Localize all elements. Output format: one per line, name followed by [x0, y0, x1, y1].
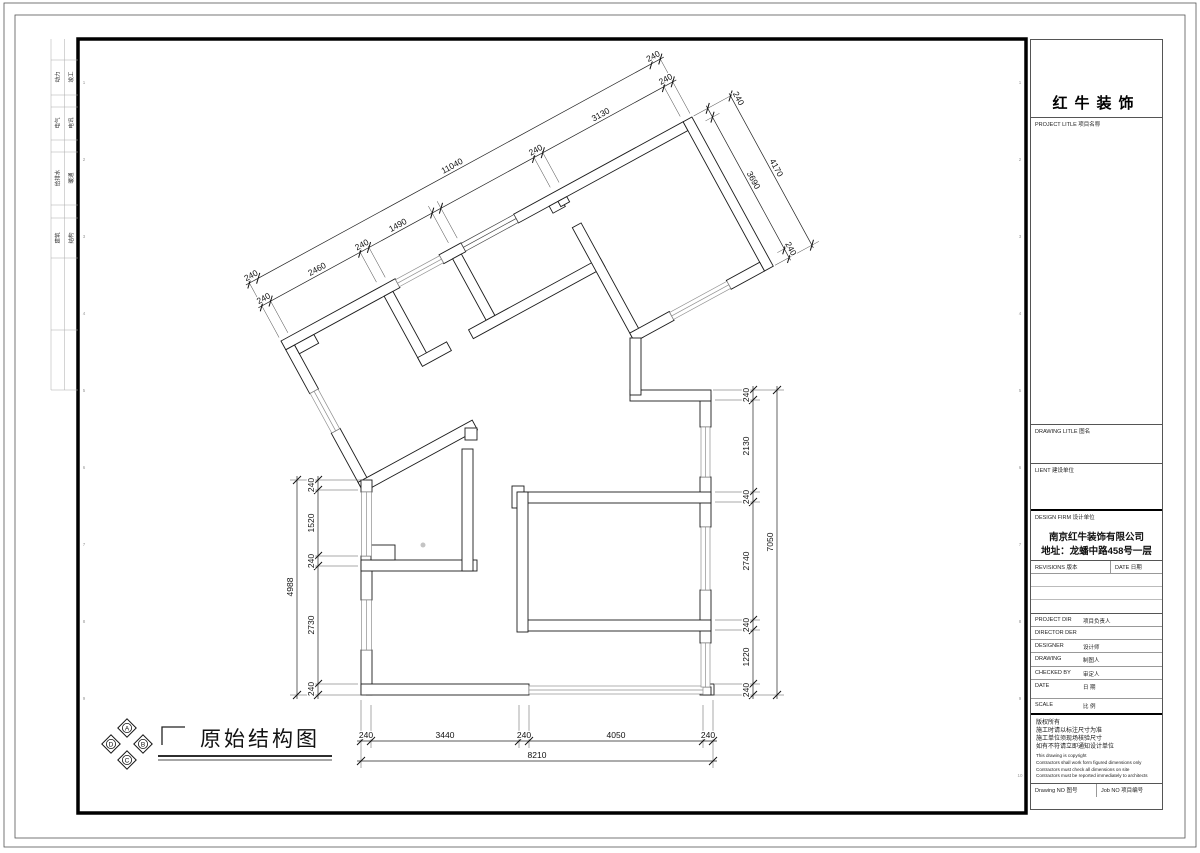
client-label: LIENT 建设单位	[1031, 464, 1162, 474]
bottom-dimensions: 240 3440 240 4050 240 8210	[357, 700, 717, 768]
staff-role-zh: 审定人	[1083, 667, 1100, 679]
revision-date-label: DATE 日期	[1111, 561, 1162, 573]
strip-label: 动力	[54, 71, 62, 82]
staff-role-zh: 项目负责人	[1083, 614, 1111, 626]
revision-row	[1031, 587, 1162, 600]
svg-text:C: C	[125, 758, 130, 765]
notice-line: 版权所有	[1036, 719, 1162, 727]
strip-label: 电气	[54, 117, 62, 129]
svg-text:240: 240	[741, 490, 751, 504]
door-symbol	[421, 543, 426, 548]
design-firm-label: DESIGN FIRM 设计单位	[1031, 511, 1162, 521]
svg-text:5: 5	[83, 388, 86, 393]
svg-text:1: 1	[1019, 80, 1022, 85]
staff-row: SCALE 比 例	[1031, 699, 1162, 713]
svg-text:6: 6	[1019, 465, 1022, 470]
compass-symbol: A B C D	[102, 719, 152, 769]
svg-text:240: 240	[741, 388, 751, 402]
svg-text:9: 9	[1019, 696, 1022, 701]
notice-line: 施工时请以标注尺寸为准	[1036, 727, 1162, 735]
revisions-table: REVISIONS 版本 DATE 日期	[1031, 561, 1162, 614]
strip-label: 暖通	[67, 172, 75, 184]
right-dimensions: 240 2130 240 2740 240 1220 240 7050	[713, 386, 784, 699]
staff-role-zh: 比 例	[1083, 699, 1096, 713]
revisions-label: REVISIONS 版本	[1031, 561, 1111, 573]
svg-text:3440: 3440	[436, 730, 455, 740]
number-box: Drawing NO 图号 Job NO 项目编号	[1031, 784, 1162, 811]
svg-text:240: 240	[701, 730, 715, 740]
svg-text:2460: 2460	[306, 260, 328, 278]
frame-grid-numbers: 1 2 3 4 5 6 7 8 9 1 2 3 4 5 6 7 8 9 10	[83, 80, 1023, 778]
notice-line-en: Contractors shall work form figured dime…	[1036, 760, 1162, 767]
drawing-sheet: 动力 竣工 电气 电讯 给排水 暖通 建筑 结构 1 2 3 4 5 6 7 8…	[0, 0, 1200, 853]
client-box: LIENT 建设单位	[1031, 464, 1162, 509]
left-dimensions: 240 1520 240 2730 240 4988	[285, 476, 366, 699]
svg-text:2: 2	[83, 157, 86, 162]
revision-row	[1031, 600, 1162, 613]
drawing-title-box: DRAWING LITLE 图名	[1031, 425, 1162, 464]
svg-text:1490: 1490	[387, 216, 409, 234]
svg-text:7: 7	[83, 542, 86, 547]
staff-role-en: DESIGNER	[1031, 640, 1083, 652]
svg-text:3: 3	[83, 234, 86, 239]
svg-text:2130: 2130	[741, 436, 751, 455]
firm-name: 南京红牛装饰有限公司	[1031, 531, 1162, 545]
svg-text:9: 9	[83, 696, 86, 701]
svg-text:A: A	[125, 726, 130, 733]
staff-row: DESIGNER 设计师	[1031, 640, 1162, 653]
staff-row: CHECKED BY 审定人	[1031, 667, 1162, 680]
staff-role-en: CHECKED BY	[1031, 667, 1083, 679]
svg-text:3690: 3690	[745, 169, 763, 191]
drawing-title: 原始结构图	[200, 728, 320, 751]
svg-text:4988: 4988	[285, 577, 295, 596]
svg-text:4: 4	[1019, 311, 1022, 316]
svg-text:10: 10	[1017, 773, 1023, 778]
strip-label: 竣工	[67, 71, 75, 83]
svg-text:4170: 4170	[768, 157, 786, 179]
svg-text:2: 2	[1019, 157, 1022, 162]
drawing-frame	[78, 39, 1026, 813]
svg-text:7: 7	[1019, 542, 1022, 547]
svg-text:5: 5	[1019, 388, 1022, 393]
staff-role-en: DATE	[1031, 680, 1083, 698]
staff-role-en: PROJECT DIR	[1031, 614, 1083, 626]
sheet-borders	[4, 3, 1196, 847]
staff-role-en: DRAWING	[1031, 653, 1083, 666]
svg-text:240: 240	[517, 730, 531, 740]
svg-text:3: 3	[1019, 234, 1022, 239]
strip-label: 结构	[67, 232, 75, 244]
svg-text:240: 240	[306, 682, 316, 696]
logo-box: 红牛装饰	[1031, 40, 1162, 118]
job-no-label: Job NO 项目编号	[1096, 784, 1162, 797]
lower-walls	[361, 338, 714, 695]
strip-label: 给排水	[54, 169, 62, 186]
notice-line-en: This drawing is copyright	[1036, 753, 1162, 760]
notice-line: 施工单位须现场核验尺寸	[1036, 735, 1162, 743]
firm-address: 地址：龙蟠中路458号一层	[1031, 545, 1162, 559]
svg-text:240: 240	[731, 90, 747, 107]
drawing-no-label: Drawing NO 图号	[1031, 784, 1096, 797]
svg-text:2740: 2740	[741, 551, 751, 570]
notice-line-en: Contractors must be reported immediately…	[1036, 773, 1162, 780]
strip-label: 建筑	[54, 232, 62, 244]
svg-text:240: 240	[741, 683, 751, 697]
svg-text:3130: 3130	[590, 105, 612, 123]
svg-text:B: B	[141, 742, 145, 749]
drawing-title-label: DRAWING LITLE 图名	[1031, 425, 1162, 435]
svg-text:8: 8	[1019, 619, 1022, 624]
strip-label: 电讯	[67, 117, 75, 129]
staff-row: DIRECTOR DER	[1031, 627, 1162, 640]
svg-text:2730: 2730	[306, 615, 316, 634]
notice-line-en: Contractors must check all dimensions on…	[1036, 767, 1162, 774]
brand-name: 红牛装饰	[1031, 92, 1162, 113]
staff-row: DRAWING 制图人	[1031, 653, 1162, 667]
title-block: 红牛装饰 PROJECT LITLE 项目名称 DRAWING LITLE 图名…	[1030, 39, 1163, 810]
svg-text:6: 6	[83, 465, 86, 470]
svg-text:7050: 7050	[765, 532, 775, 551]
svg-text:240: 240	[783, 240, 799, 257]
staff-role-en: SCALE	[1031, 699, 1083, 713]
svg-text:1520: 1520	[306, 513, 316, 532]
svg-text:240: 240	[359, 730, 373, 740]
staff-row: PROJECT DIR 项目负责人	[1031, 614, 1162, 627]
staff-role-zh: 制图人	[1083, 653, 1100, 666]
svg-text:4050: 4050	[607, 730, 626, 740]
staff-role-zh: 日 期	[1083, 680, 1096, 698]
svg-text:8: 8	[83, 619, 86, 624]
notice-line: 如有不符请立即通知设计单位	[1036, 743, 1162, 751]
svg-text:240: 240	[741, 618, 751, 632]
drawing-title-group: 原始结构图	[158, 727, 332, 760]
project-title-box: PROJECT LITLE 项目名称	[1031, 118, 1162, 425]
notice-box: 版权所有 施工时请以标注尺寸为准 施工单位须现场核验尺寸 如有不符请立即通知设计…	[1031, 713, 1162, 784]
svg-text:8210: 8210	[528, 750, 547, 760]
cad-canvas: 动力 竣工 电气 电讯 给排水 暖通 建筑 结构 1 2 3 4 5 6 7 8…	[0, 0, 1200, 853]
revision-row	[1031, 574, 1162, 587]
svg-text:240: 240	[306, 478, 316, 492]
design-firm-box: DESIGN FIRM 设计单位 南京红牛装饰有限公司 地址：龙蟠中路458号一…	[1031, 509, 1162, 561]
svg-text:D: D	[109, 742, 114, 749]
svg-text:4: 4	[83, 311, 86, 316]
discipline-strip: 动力 竣工 电气 电讯 给排水 暖通 建筑 结构	[51, 39, 78, 390]
rotated-wing: 240 11040 240 240 2460 240 1490 240 3130…	[241, 23, 824, 496]
svg-text:240: 240	[306, 554, 316, 568]
project-title-label: PROJECT LITLE 项目名称	[1031, 118, 1162, 128]
staff-row: DATE 日 期	[1031, 680, 1162, 699]
staff-role-en: DIRECTOR DER	[1031, 627, 1083, 639]
lower-block: 240 1520 240 2730 240 4988 240 2130	[285, 338, 784, 768]
staff-role-zh: 设计师	[1083, 640, 1100, 652]
svg-text:1220: 1220	[741, 647, 751, 666]
svg-text:1: 1	[83, 80, 86, 85]
